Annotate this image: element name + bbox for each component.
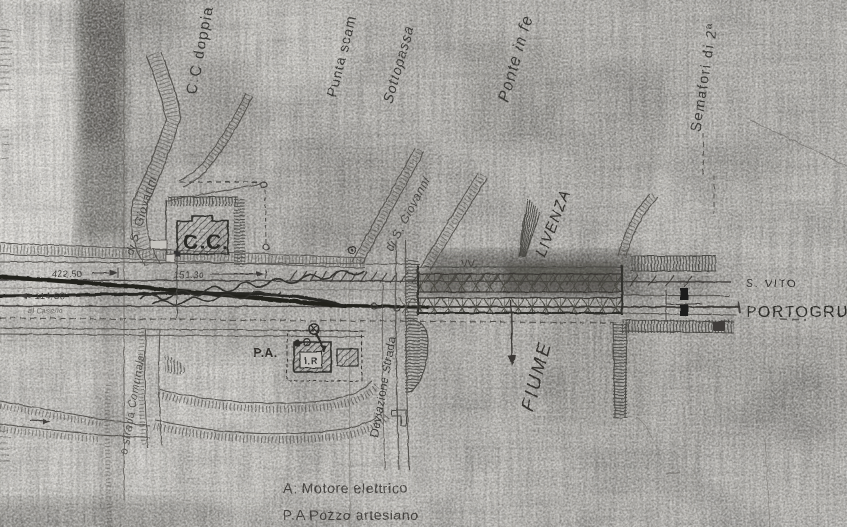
svg-text:PORTOGRUA: PORTOGRUA <box>746 304 847 321</box>
svg-text:114.60: 114.60 <box>35 291 65 301</box>
svg-text:A: Motore elettrico: A: Motore elettrico <box>283 480 408 496</box>
svg-text:S. VITO: S. VITO <box>746 278 798 290</box>
svg-text:422.50: 422.50 <box>52 269 83 279</box>
svg-text:P.A.: P.A. <box>253 346 278 360</box>
svg-text:C.C.: C.C. <box>183 231 229 254</box>
svg-text:VV.: VV. <box>461 259 478 270</box>
svg-text:al Casello: al Casello <box>28 308 63 315</box>
svg-text:I.R: I.R <box>304 356 319 366</box>
svg-text:151.3o: 151.3o <box>174 270 205 280</box>
svg-text:P.A Pozzo artesiano: P.A Pozzo artesiano <box>283 507 419 523</box>
